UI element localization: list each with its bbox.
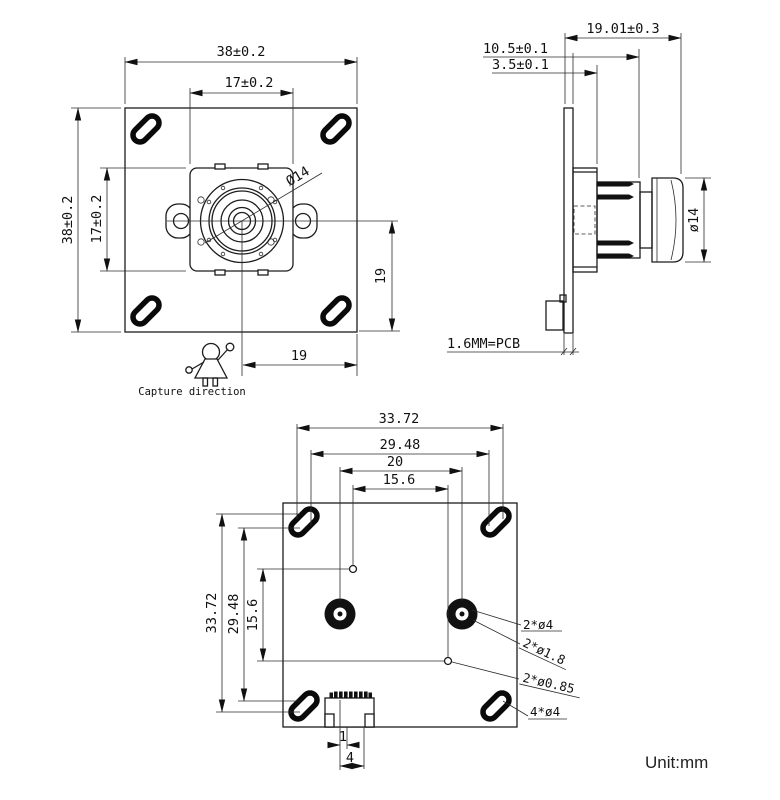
dim-side-lens-diameter: ø14 bbox=[685, 178, 711, 262]
mounting-slot bbox=[130, 113, 162, 145]
dim-label: 33.72 bbox=[204, 593, 220, 634]
holder-side-profile bbox=[573, 168, 597, 272]
dim-label: 3.5±0.1 bbox=[492, 57, 549, 73]
hidden-lines bbox=[574, 206, 595, 234]
dim-label: ø14 bbox=[686, 208, 702, 232]
dim-label: 38±0.2 bbox=[217, 44, 266, 60]
pcb-label: 1.6MM=PCB bbox=[447, 336, 520, 352]
dim-label: 4 bbox=[346, 750, 354, 766]
back-board-outline bbox=[283, 503, 517, 727]
unit-label: Unit:mm bbox=[645, 753, 708, 772]
dim-front-width-outer: 38±0.2 bbox=[125, 44, 357, 104]
mounting-slot bbox=[320, 113, 352, 145]
dim-front-center-offset-vertical: 19 bbox=[359, 221, 400, 331]
dim-side-holder-depth: 3.5±0.1 bbox=[492, 57, 597, 73]
dim-side-lens-depth: 10.5±0.1 bbox=[483, 41, 639, 57]
mounting-slot bbox=[130, 295, 162, 327]
dim-label: 15.6 bbox=[383, 472, 416, 488]
dim-label: 17±0.2 bbox=[89, 195, 105, 244]
barrel-ribs bbox=[597, 182, 634, 259]
dim-label: 19 bbox=[291, 348, 307, 364]
dim-front-width-inner: 17±0.2 bbox=[190, 75, 293, 164]
drawing-page: Ø14 38±0.2 17±0.2 38±0.2 17±0.2 bbox=[0, 0, 780, 800]
mounting-slot bbox=[320, 295, 352, 327]
capture-direction-label: Capture direction bbox=[138, 386, 245, 398]
dim-front-center-offset-horizontal: 19 bbox=[243, 334, 357, 376]
mounting-slot bbox=[288, 506, 320, 538]
dim-label: 1 bbox=[339, 729, 347, 745]
mounting-slot bbox=[480, 690, 512, 722]
dim-side-total-depth: 19.01±0.3 bbox=[565, 21, 681, 38]
dim-label: 29.48 bbox=[226, 594, 242, 635]
dim-label: 15.6 bbox=[245, 599, 261, 632]
dim-back-h-small: 15.6 bbox=[353, 472, 448, 658]
side-view: 19.01±0.3 10.5±0.1 3.5±0.1 ø14 1.6MM=PCB bbox=[447, 21, 711, 355]
back-mounting-slots bbox=[288, 506, 512, 722]
callout-label: 4*ø4 bbox=[530, 704, 560, 719]
mounting-slot bbox=[480, 506, 512, 538]
connector-pins bbox=[330, 692, 373, 699]
dim-pcb-thickness: 1.6MM=PCB bbox=[447, 334, 579, 355]
dim-label: 10.5±0.1 bbox=[483, 41, 548, 57]
small-hole-upper bbox=[350, 566, 357, 573]
holder-body bbox=[190, 168, 293, 271]
back-holes bbox=[325, 566, 478, 665]
fpc-connector bbox=[325, 692, 374, 728]
dim-label: 33.72 bbox=[379, 411, 420, 427]
dim-label: 29.48 bbox=[380, 437, 421, 453]
barrel-neck bbox=[640, 192, 652, 248]
lens-barrel bbox=[597, 182, 640, 258]
figure-head bbox=[203, 344, 220, 361]
callout-slots: 4*ø4 bbox=[503, 701, 567, 719]
callout-label: 2*ø4 bbox=[523, 617, 553, 632]
capture-direction-figure: Capture direction bbox=[138, 343, 245, 398]
dim-label: 17±0.2 bbox=[225, 75, 274, 91]
pcb-side-profile bbox=[564, 108, 573, 333]
small-hole-lower bbox=[445, 658, 452, 665]
lens-dome-arc bbox=[671, 180, 676, 260]
dim-label: 19.01±0.3 bbox=[586, 21, 659, 37]
dim-label: 20 bbox=[387, 454, 403, 470]
mounting-slot bbox=[288, 690, 320, 722]
camera-module-dimension-drawing: Ø14 38±0.2 17±0.2 38±0.2 17±0.2 bbox=[0, 0, 780, 800]
figure-body bbox=[195, 359, 227, 378]
front-view: Ø14 38±0.2 17±0.2 38±0.2 17±0.2 bbox=[60, 44, 400, 398]
back-view: 33.72 29.48 20 15.6 33.72 bbox=[204, 411, 583, 770]
callout-label: 2*ø0.85 bbox=[521, 670, 576, 696]
callout-label: 2*ø1.8 bbox=[521, 635, 568, 668]
dim-label: 38±0.2 bbox=[60, 196, 76, 245]
dim-label: 19 bbox=[373, 268, 389, 284]
connector-side-profile bbox=[546, 301, 563, 330]
